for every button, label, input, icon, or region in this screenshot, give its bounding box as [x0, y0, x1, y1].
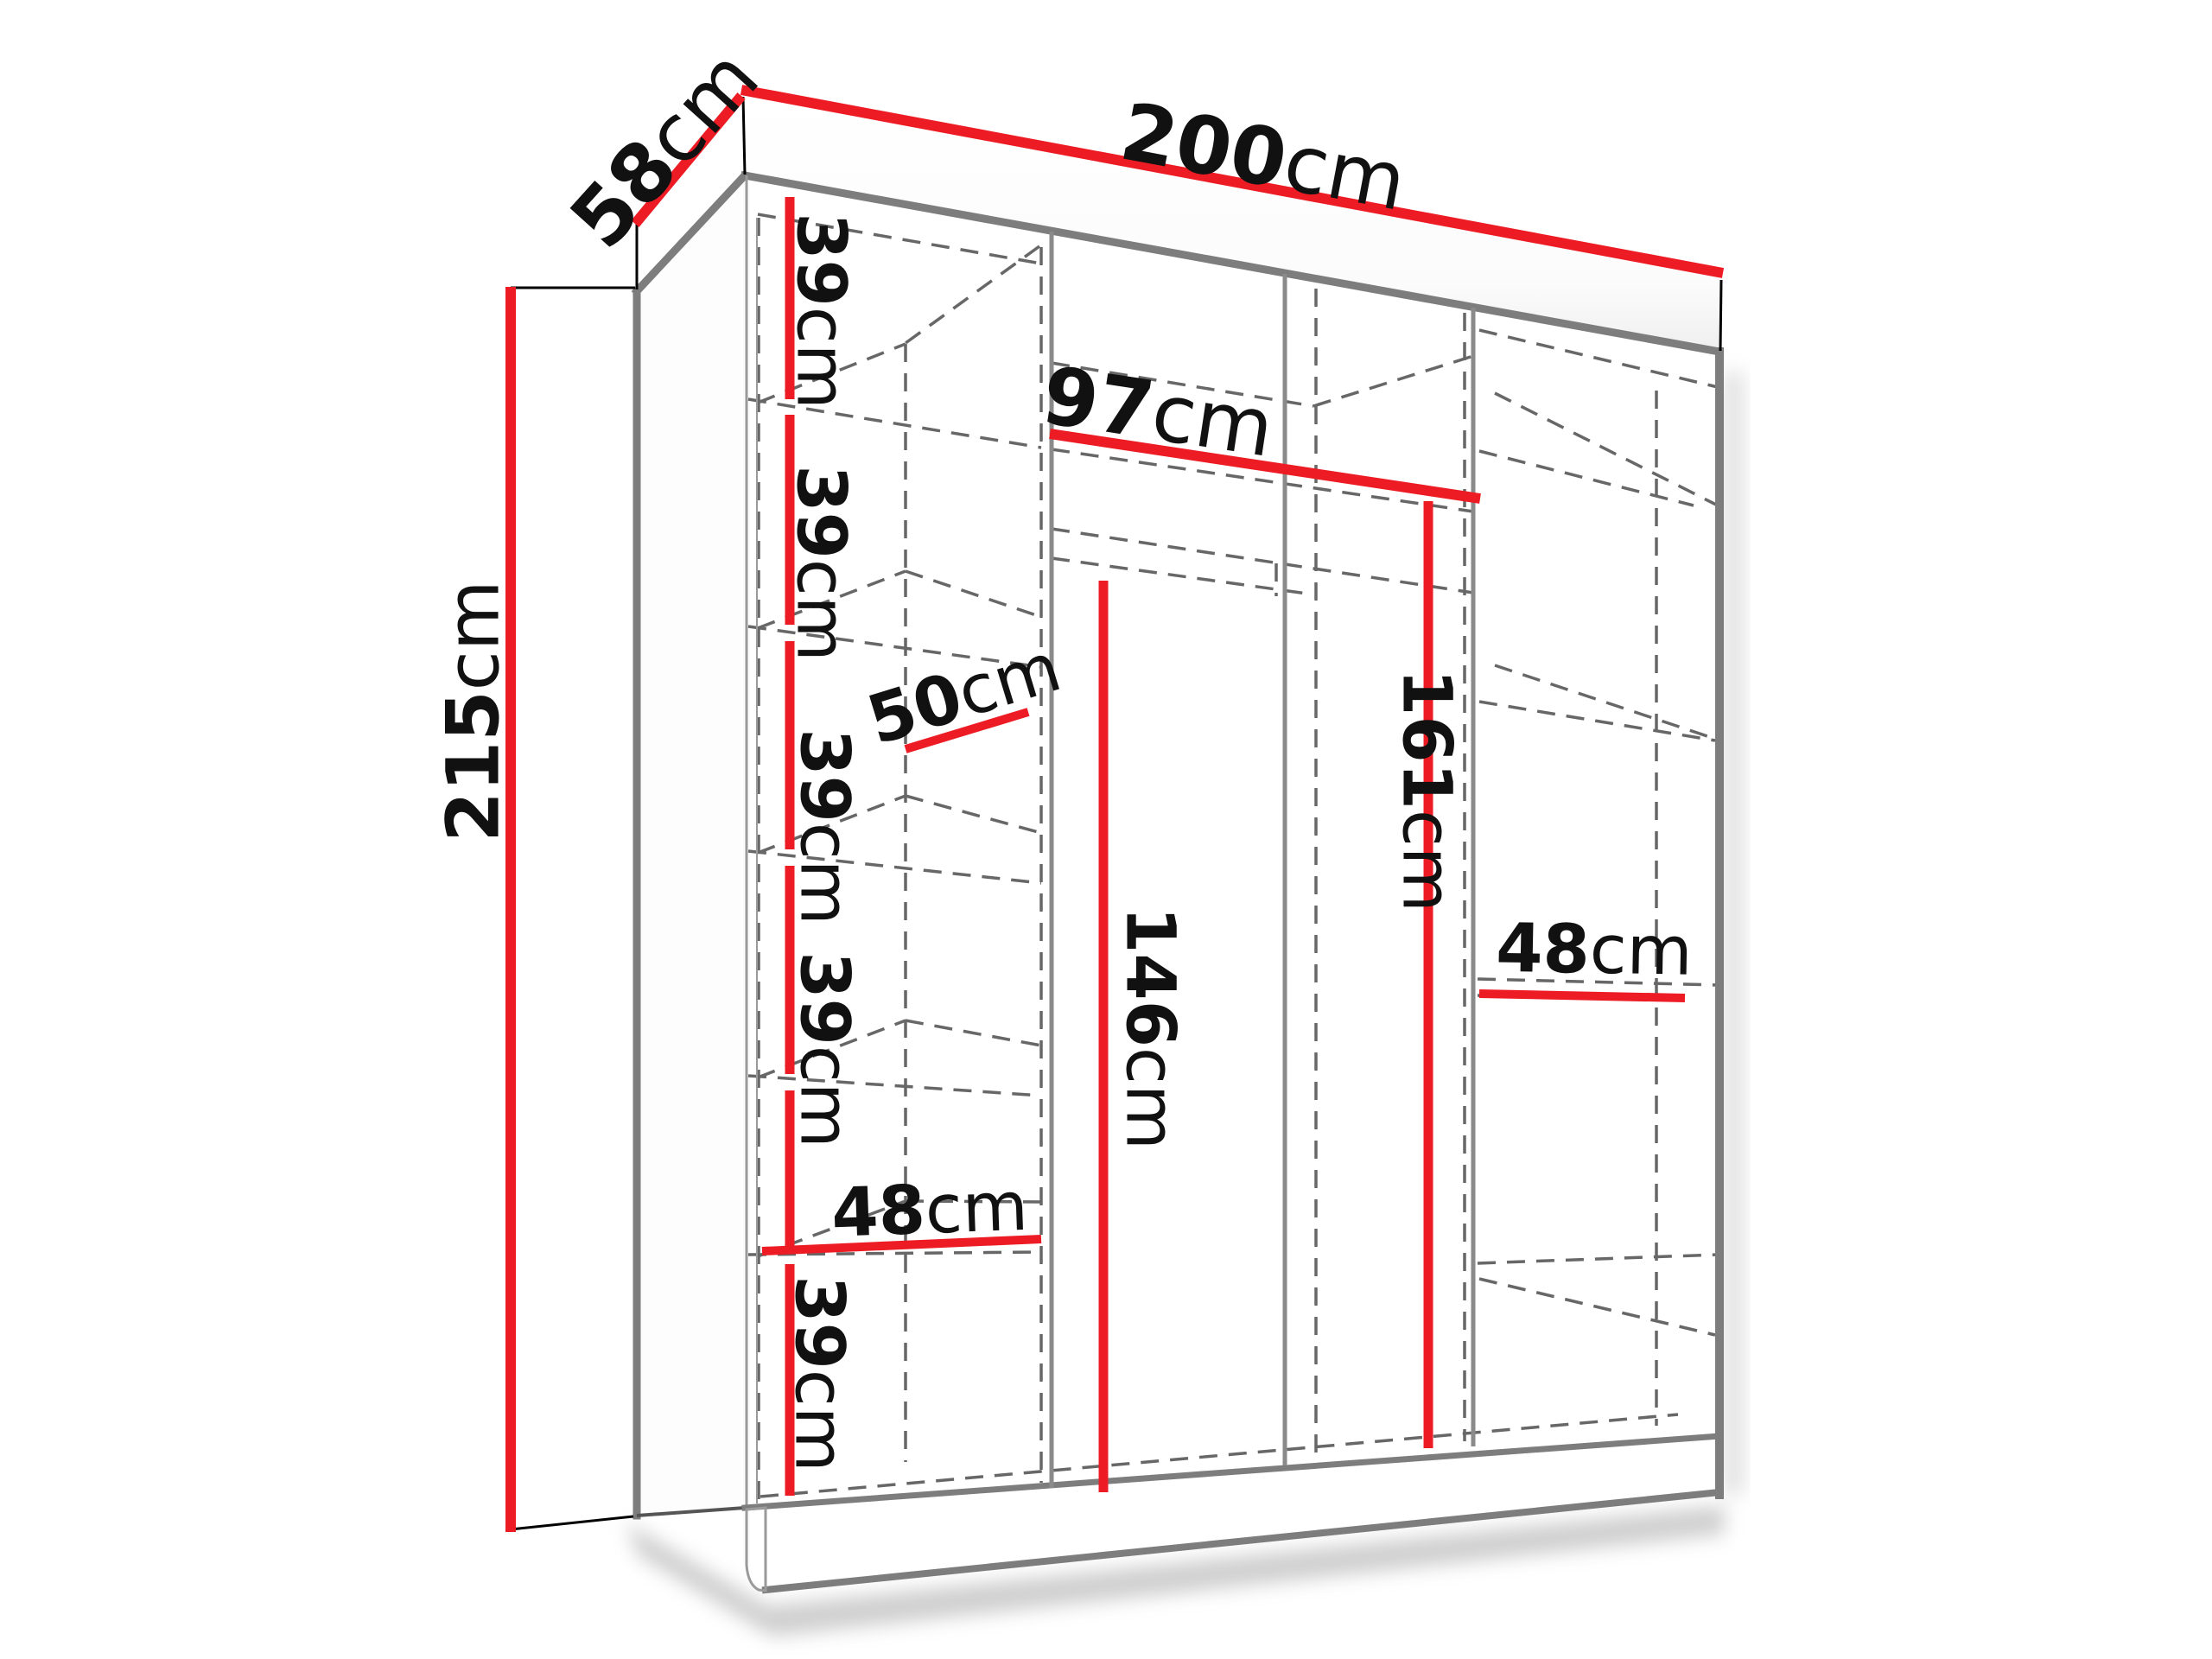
dim-line-right-width-48 [1479, 994, 1685, 998]
label-right-width-48cm: 48cm [1496, 910, 1694, 991]
height-ext-bottom [511, 1516, 633, 1529]
label-shelf5-39cm: 39cm [779, 1275, 857, 1471]
label-shelf4-39cm: 39cm [785, 951, 862, 1147]
label-height-215cm: 215cm [431, 580, 516, 842]
label-mid-height-146cm: 146cm [1110, 906, 1188, 1150]
label-shelf2-39cm: 39cm [781, 465, 859, 661]
label-left-width-48cm: 48cm [830, 1168, 1029, 1253]
label-shelf1-39cm: 39cm [781, 213, 859, 409]
right-side-shadow [1723, 372, 1744, 1495]
front-opening [745, 175, 1719, 1508]
diagram-canvas: 200cm 58cm 215cm 39cm 39cm 39cm 39cm 39c… [0, 0, 2212, 1659]
label-mid-height-161cm: 161cm [1387, 669, 1465, 912]
label-shelf3-39cm: 39cm [785, 728, 862, 925]
wardrobe-dimension-diagram: 200cm 58cm 215cm 39cm 39cm 39cm 39cm 39c… [0, 0, 2212, 1659]
width-ext-right [1720, 280, 1721, 351]
left-side-panel [637, 175, 745, 1516]
